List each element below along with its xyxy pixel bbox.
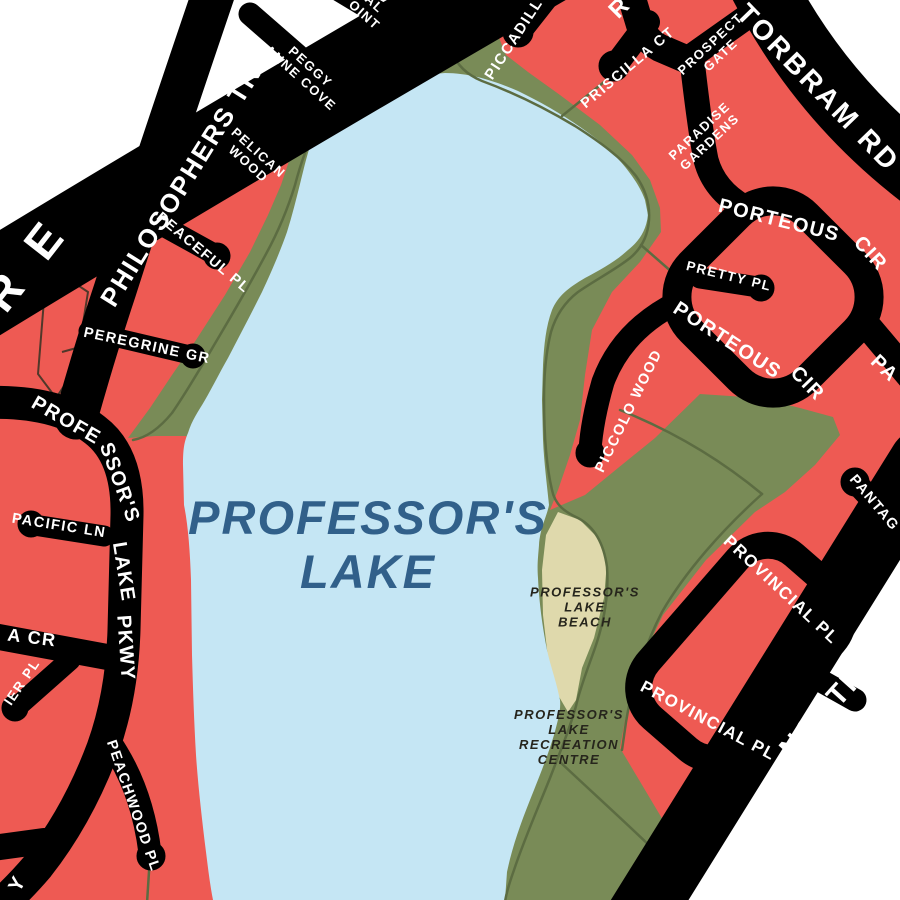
bulb-al-point xyxy=(388,13,418,43)
neighbourhood-map: R E PHILOSOPHERS TR TORBRAM RD NORTH PA … xyxy=(0,0,900,900)
street-label-pkwy-seg4: PKWY xyxy=(111,614,139,681)
lake-title: PROFESSOR'S LAKE xyxy=(188,491,548,599)
recreation-centre-label: PROFESSOR'S LAKE RECREATION CENTRE xyxy=(514,708,624,768)
road-side-stub xyxy=(0,841,44,849)
map-canvas xyxy=(0,0,900,900)
beach-label: PROFESSOR'S LAKE BEACH xyxy=(530,586,640,631)
